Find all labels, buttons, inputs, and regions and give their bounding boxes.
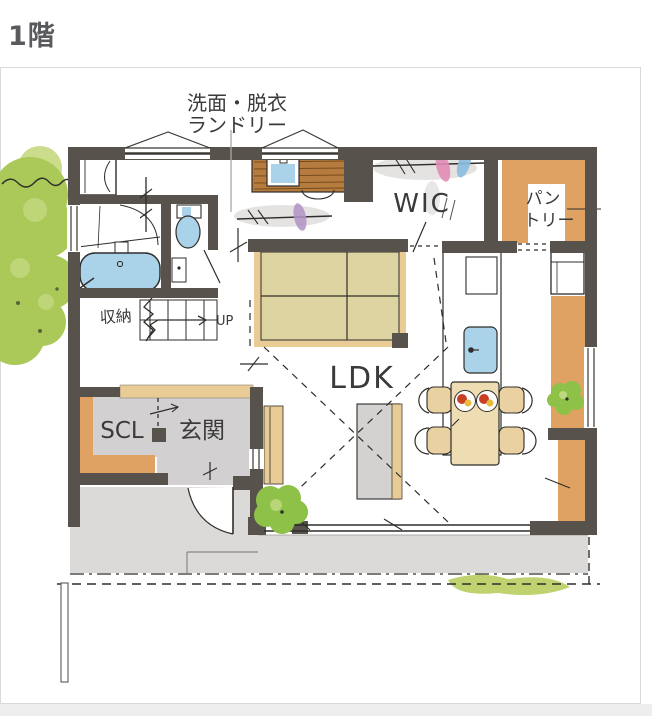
scl-label: SCL bbox=[100, 418, 144, 444]
laundry-counter bbox=[252, 154, 347, 199]
tatami-sofa-area bbox=[254, 245, 406, 347]
dining-chair bbox=[499, 387, 524, 413]
hand-wash-basin bbox=[172, 258, 186, 282]
page-bottom-strip bbox=[0, 704, 652, 716]
storage-label: 収納 bbox=[99, 306, 132, 327]
entrance-step bbox=[120, 385, 253, 398]
fence-line bbox=[61, 583, 68, 682]
pantry-label-line2: トリー bbox=[524, 211, 575, 231]
toilet-bowl bbox=[176, 216, 200, 248]
laundry-label-line1: 洗面・脱衣 bbox=[187, 91, 287, 115]
refrigerator bbox=[551, 251, 584, 294]
dining-chair bbox=[427, 387, 452, 413]
tv-board bbox=[357, 404, 402, 499]
laundry-label-line2: ランドリー bbox=[187, 113, 287, 137]
bathtub bbox=[80, 253, 160, 291]
dining-chair bbox=[427, 427, 452, 454]
ldk-west-cabinet bbox=[264, 406, 283, 484]
washing-machine bbox=[76, 158, 116, 195]
floor-plan-canvas: UP 収納 bbox=[0, 0, 652, 716]
floor-plan-page: { "title": "1階", "plan": { "labels": { "… bbox=[0, 0, 652, 716]
dining-chair bbox=[499, 427, 524, 454]
wic-label: WIC bbox=[393, 189, 451, 219]
ldk-label: LDK bbox=[329, 361, 395, 396]
cooktop bbox=[466, 257, 497, 294]
entrance-label: 玄関 bbox=[179, 418, 225, 444]
stairs-up-label: UP bbox=[216, 314, 234, 329]
pantry-label-line1: パン bbox=[526, 189, 561, 209]
